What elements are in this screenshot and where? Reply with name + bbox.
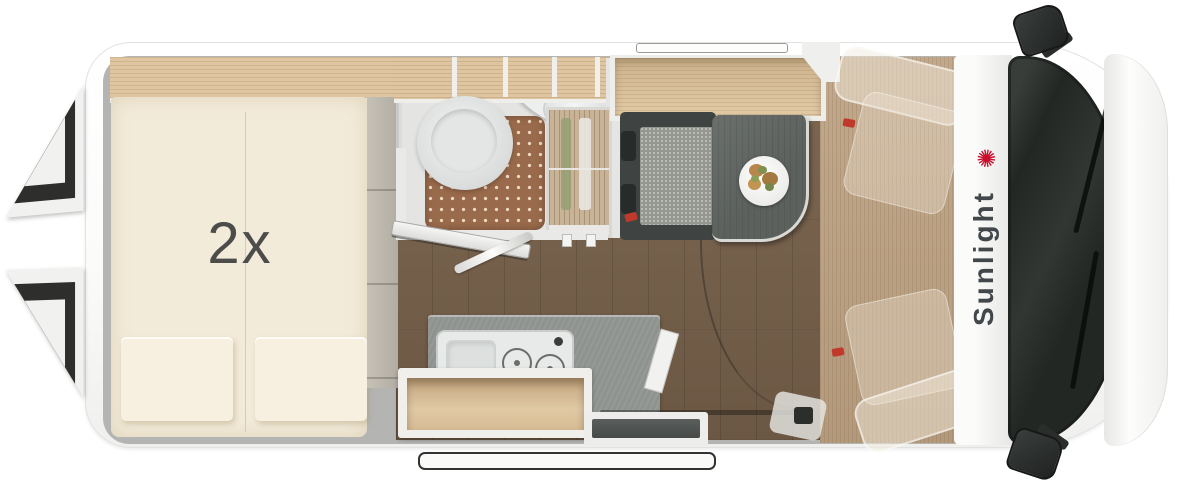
sliding-door-window <box>636 43 788 53</box>
wall-hook <box>586 234 596 247</box>
burner-center <box>514 360 520 366</box>
toilet <box>417 96 513 190</box>
bench-headrest <box>621 131 636 161</box>
food-garnish <box>758 166 767 174</box>
stove-knob <box>554 337 563 346</box>
hanging-garment <box>579 118 591 210</box>
food-garnish <box>765 183 774 191</box>
rear-door-open-top <box>4 82 86 222</box>
sliding-door-rail <box>418 452 716 470</box>
campervan-floorplan: 2x <box>0 0 1200 482</box>
kitchen-shelf-interior <box>407 378 584 430</box>
hood <box>1104 54 1168 446</box>
cubby-divider <box>452 57 457 97</box>
entry-step <box>592 419 700 438</box>
partition-wall <box>367 97 398 388</box>
rear-door-window <box>24 299 67 370</box>
rear-door-window <box>24 116 67 189</box>
palm-tree-icon: ✺ <box>969 143 1002 176</box>
food-garnish <box>751 175 759 182</box>
bench-cushion <box>640 127 714 225</box>
toilet-bowl <box>431 109 497 173</box>
hanging-garment <box>561 118 571 210</box>
wardrobe-rail <box>549 168 609 170</box>
wall-hook <box>562 234 572 247</box>
bed-quantity-label: 2x <box>175 203 305 283</box>
bathroom-door-frame <box>396 148 406 222</box>
cubby-divider <box>552 57 557 97</box>
pillow <box>255 337 367 421</box>
dinner-plate <box>739 156 789 206</box>
bench-headrest <box>621 184 636 214</box>
seat-base-bracket <box>794 407 813 424</box>
rear-door-open-bottom <box>4 266 86 402</box>
wardrobe <box>546 107 612 238</box>
cubby-divider <box>595 57 600 97</box>
cubby-divider <box>503 57 508 97</box>
brand-logo: Sunlight <box>966 178 1002 338</box>
pillow <box>121 337 233 421</box>
